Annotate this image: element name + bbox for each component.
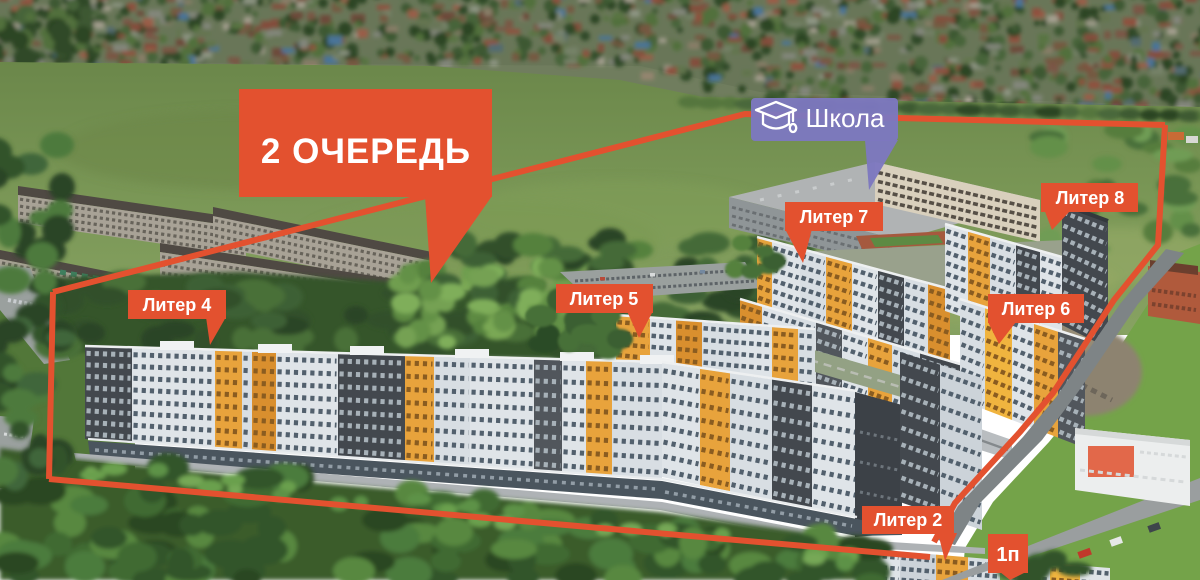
svg-text:Литер 7: Литер 7 <box>800 207 869 227</box>
svg-text:Литер 6: Литер 6 <box>1002 299 1071 319</box>
svg-text:Школа: Школа <box>805 103 885 133</box>
svg-text:Литер 2: Литер 2 <box>874 510 943 530</box>
svg-text:2 ОЧЕРЕДЬ: 2 ОЧЕРЕДЬ <box>261 132 471 171</box>
svg-text:Литер 5: Литер 5 <box>570 289 639 309</box>
svg-text:Литер 4: Литер 4 <box>143 295 212 315</box>
svg-text:Литер 8: Литер 8 <box>1056 188 1125 208</box>
svg-text:1п: 1п <box>996 544 1019 566</box>
